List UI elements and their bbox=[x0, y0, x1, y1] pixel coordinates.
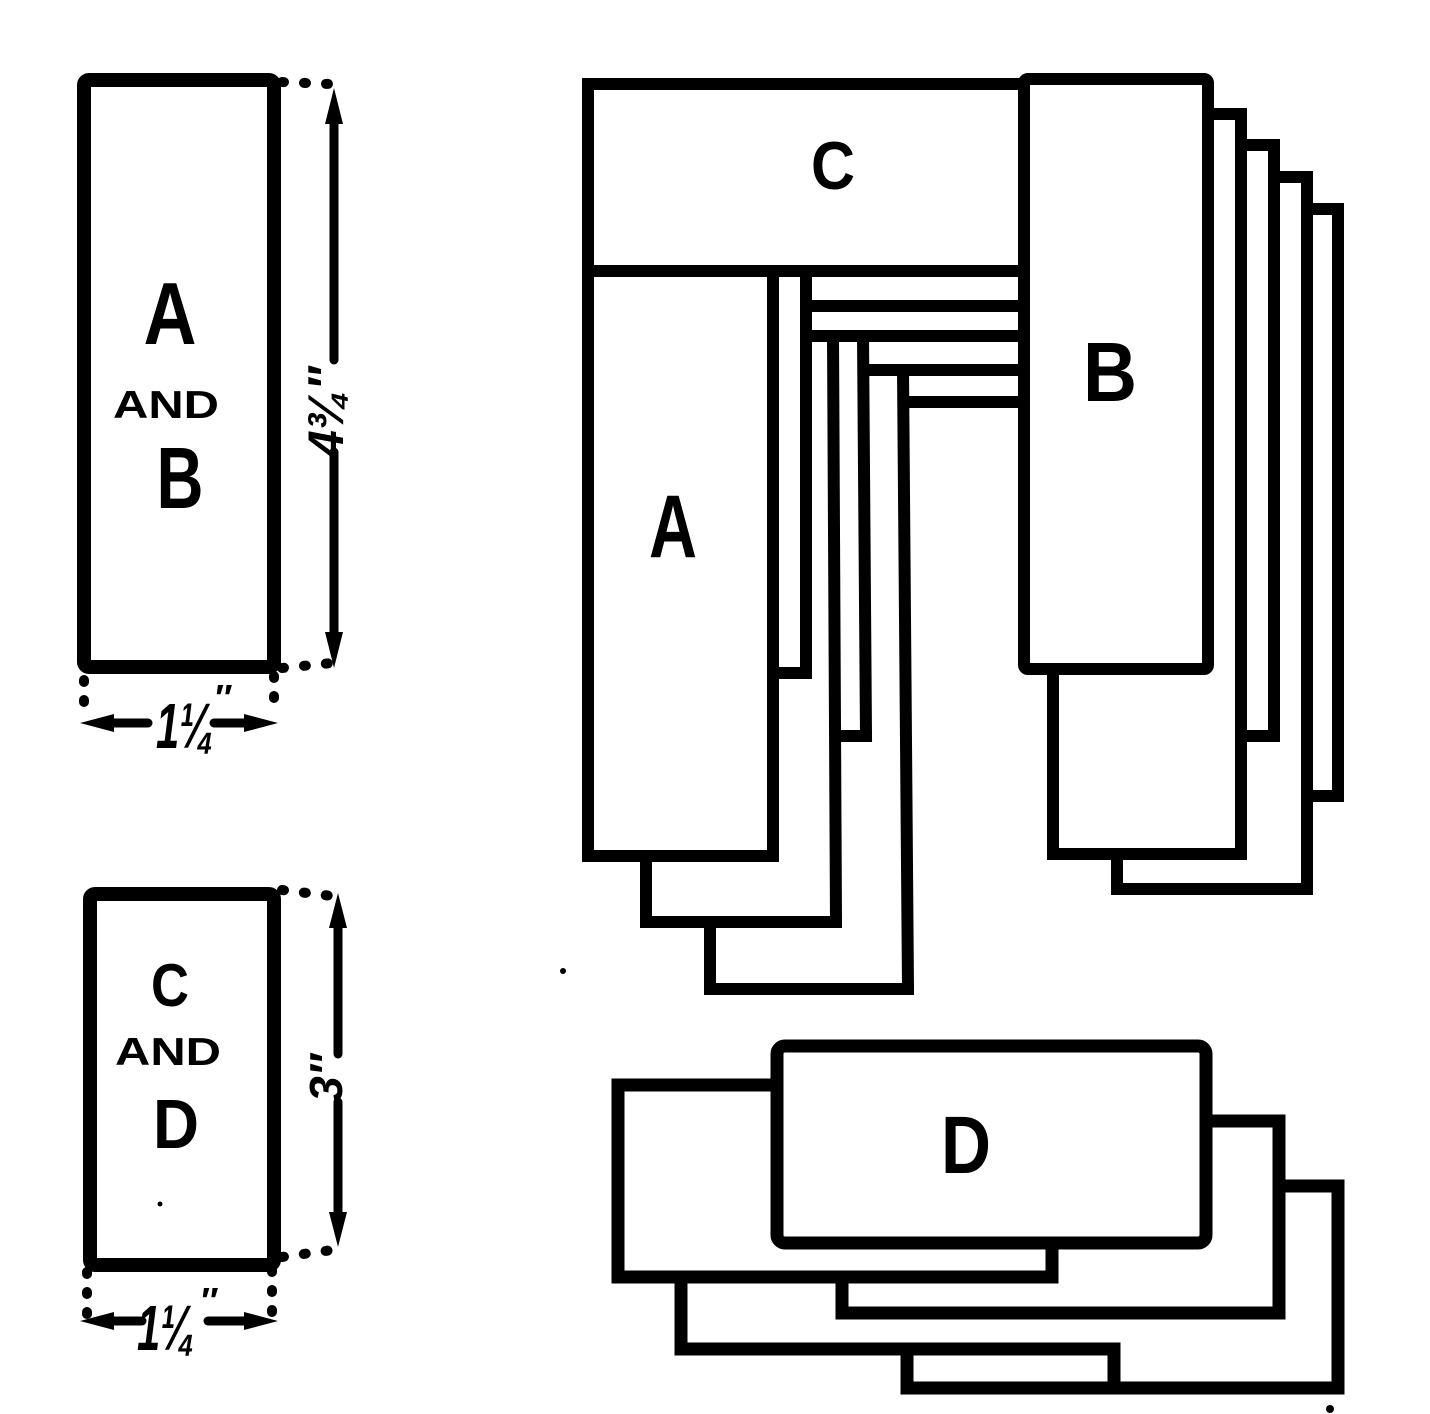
svg-text:D: D bbox=[153, 1085, 199, 1163]
svg-text:A: A bbox=[144, 264, 197, 363]
svg-text:A: A bbox=[649, 476, 697, 576]
svg-text:1¼: 1¼ bbox=[137, 1292, 195, 1364]
svg-text:B: B bbox=[157, 430, 204, 527]
svg-text:3″: 3″ bbox=[300, 1052, 352, 1102]
svg-text:1¼: 1¼ bbox=[156, 690, 214, 762]
svg-text:B: B bbox=[1083, 325, 1137, 419]
svg-text:″: ″ bbox=[199, 1280, 218, 1321]
svg-text:C: C bbox=[811, 128, 855, 204]
svg-text:AND: AND bbox=[115, 1031, 221, 1074]
svg-text:″: ″ bbox=[213, 677, 232, 718]
svg-text:D: D bbox=[941, 1100, 991, 1191]
svg-text:C: C bbox=[151, 952, 189, 1019]
svg-text:4¾″: 4¾″ bbox=[298, 365, 354, 458]
svg-text:AND: AND bbox=[113, 384, 219, 427]
